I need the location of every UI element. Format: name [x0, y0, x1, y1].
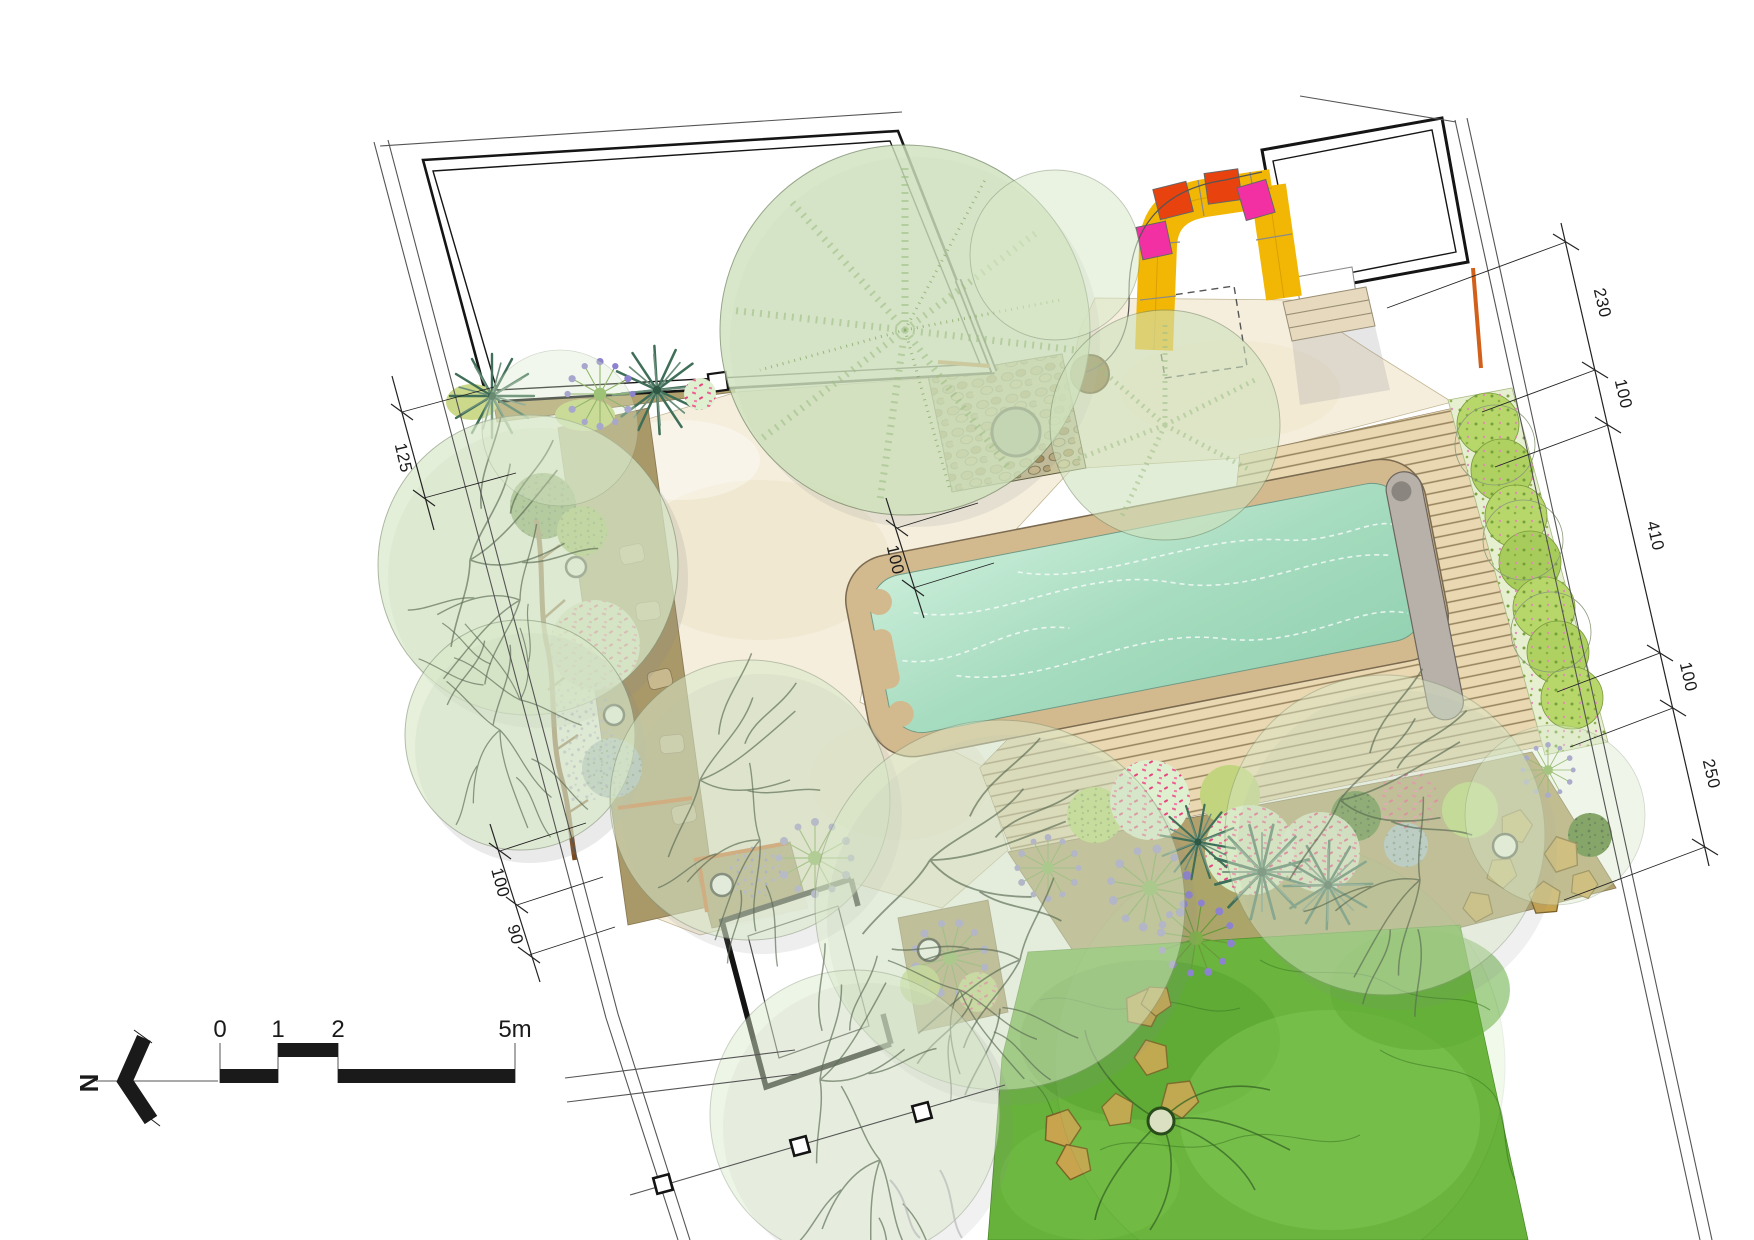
fern-tree-small — [1050, 310, 1280, 540]
dim-right-410: 410 — [1643, 519, 1668, 552]
scale-bar: 0 1 2 5m — [213, 1016, 531, 1083]
fence-post — [653, 1174, 673, 1194]
garden-plan-drawing: 230 100 410 100 250 125 100 90 100 N 0 1… — [0, 0, 1754, 1240]
scale-label-5m: 5m — [498, 1016, 531, 1043]
fence-post — [912, 1102, 932, 1122]
dim-left-90: 90 — [504, 922, 528, 946]
cushion-magenta-2 — [1136, 221, 1172, 260]
scale-segment-2-5 — [338, 1069, 515, 1083]
dim-right-250: 250 — [1699, 757, 1724, 790]
dim-right-100b: 100 — [1676, 660, 1701, 693]
garden-plan-page: 230 100 410 100 250 125 100 90 100 N 0 1… — [0, 0, 1754, 1240]
scale-segment-0-1 — [220, 1069, 278, 1083]
scale-label-0: 0 — [213, 1016, 226, 1043]
cushion-red-2 — [1204, 169, 1242, 204]
north-label: N — [74, 1074, 104, 1093]
north-arrow: N — [74, 1030, 218, 1126]
scale-segment-1-2 — [278, 1043, 338, 1057]
dim-left-125: 125 — [391, 441, 416, 474]
fence-post — [790, 1136, 810, 1156]
dim-right-100a: 100 — [1611, 377, 1636, 410]
dim-right-230: 230 — [1590, 286, 1615, 319]
dim-left-100: 100 — [487, 866, 513, 900]
scale-label-1: 1 — [271, 1016, 284, 1043]
scale-label-2: 2 — [331, 1016, 344, 1043]
north-chevron — [125, 1038, 151, 1120]
